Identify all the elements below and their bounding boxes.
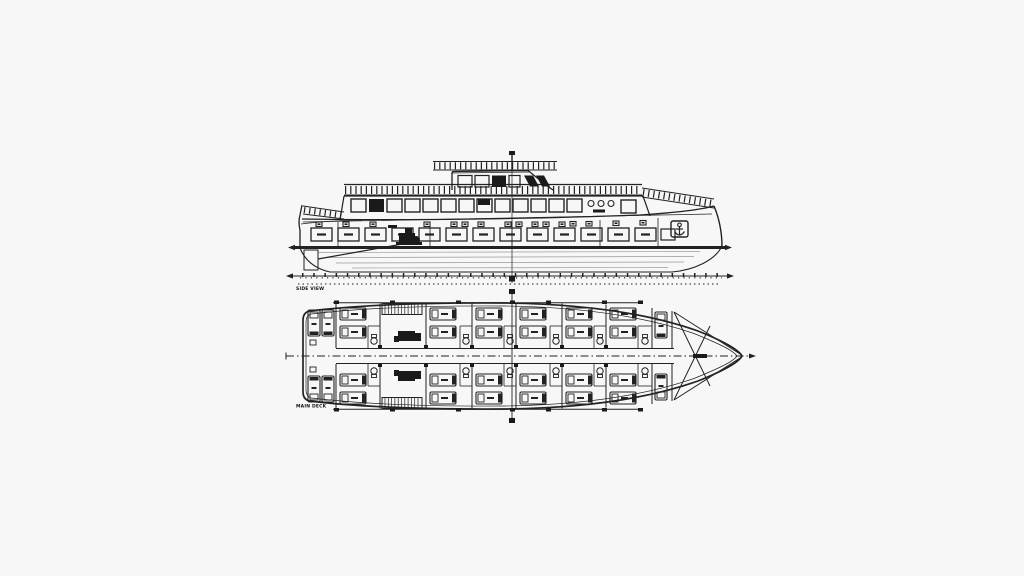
ship-general-arrangement-drawing: SIDE VIEW (0, 0, 1024, 576)
deck-plan-view: MAIN DECK (286, 289, 756, 423)
aft-deck-railing (303, 206, 344, 219)
deck-plan-caption: MAIN DECK (296, 404, 327, 410)
deck-machinery (388, 225, 422, 245)
machinery-symbol (394, 331, 421, 342)
porthole-circles (588, 201, 614, 213)
cabin-row-starboard (308, 364, 672, 412)
plan-centerline (286, 353, 756, 360)
foredeck-railing (642, 188, 714, 208)
forepeak-bracing (674, 312, 740, 400)
cabin-row (308, 301, 672, 349)
main-deck-window-row (311, 218, 675, 247)
blueprint-page: SIDE VIEW (0, 0, 1024, 576)
bridge-railing (433, 162, 557, 171)
side-elevation-view: SIDE VIEW (286, 151, 734, 292)
profile-view-caption: SIDE VIEW (296, 286, 324, 292)
propeller-shaft-line (318, 243, 408, 259)
